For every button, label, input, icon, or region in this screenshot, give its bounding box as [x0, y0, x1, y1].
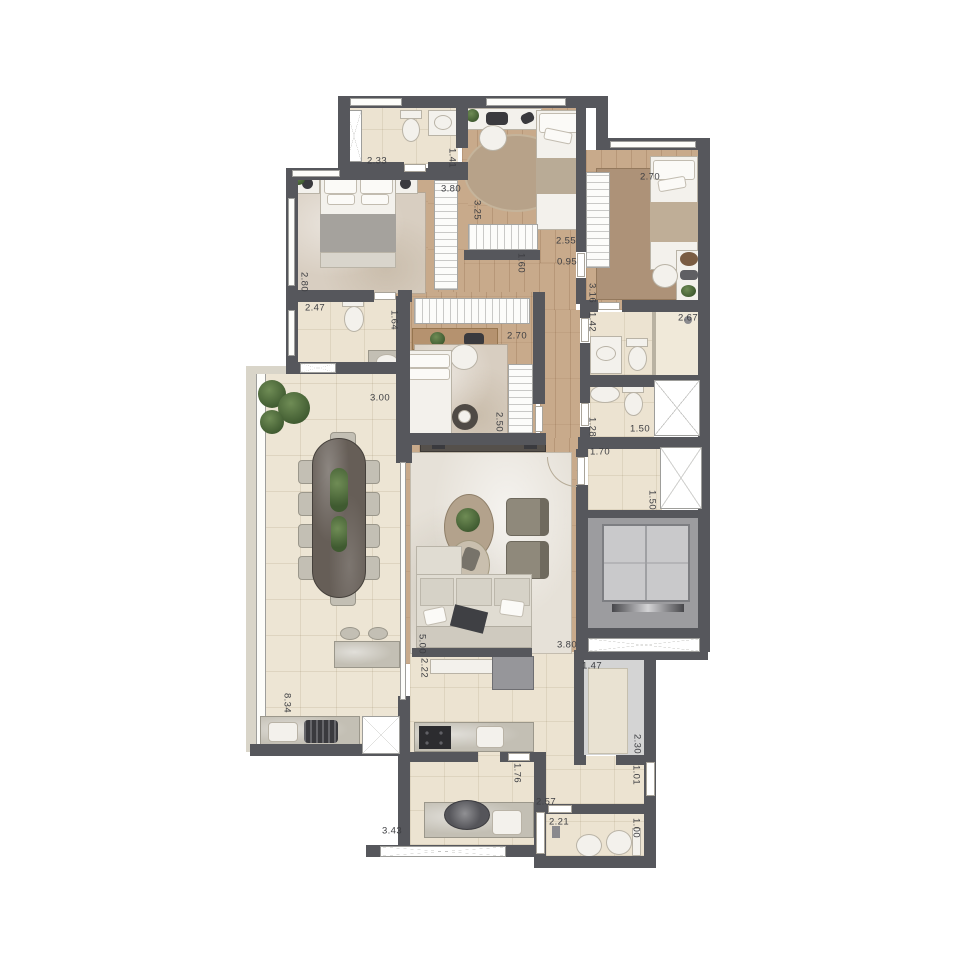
dimension-label: 0.95 [557, 257, 577, 268]
dimension-labels: 2.331.413.803.252.702.550.951.603.161.42… [0, 0, 967, 967]
dimension-label: 1.70 [590, 447, 610, 458]
dimension-label: 2.55 [556, 236, 576, 247]
dimension-label: 1.28 [587, 417, 598, 437]
dimension-label: 3.00 [370, 393, 390, 404]
dimension-label: 1.76 [512, 763, 523, 783]
dimension-label: 3.43 [382, 826, 402, 837]
dimension-label: 2.70 [640, 172, 660, 183]
dimension-label: 3.16 [587, 283, 598, 303]
dimension-label: 1.47 [582, 661, 602, 672]
dimension-label: 1.00 [631, 818, 642, 838]
dimension-label: 1.50 [630, 424, 650, 435]
dimension-label: 1.01 [631, 765, 642, 785]
dimension-label: 5.00 [417, 634, 428, 654]
dimension-label: 2.21 [549, 817, 569, 828]
dimension-label: 3.25 [472, 200, 483, 220]
dimension-label: 2.22 [419, 658, 430, 678]
dimension-label: 8.34 [282, 693, 293, 713]
dimension-label: 2.57 [536, 797, 556, 808]
dimension-label: 3.80 [441, 184, 461, 195]
floor-plan: 2.331.413.803.252.702.550.951.603.161.42… [0, 0, 967, 967]
dimension-label: 1.50 [647, 490, 658, 510]
dimension-label: 2.33 [367, 156, 387, 167]
dimension-label: 2.47 [305, 303, 325, 314]
dimension-label: 3.80 [557, 640, 577, 651]
dimension-label: 1.60 [516, 253, 527, 273]
dimension-label: 2.80 [299, 272, 310, 292]
dimension-label: 2.30 [632, 734, 643, 754]
dimension-label: 1.41 [447, 148, 458, 168]
dimension-label: 2.67 [678, 313, 698, 324]
dimension-label: 2.70 [507, 331, 527, 342]
dimension-label: 2.50 [494, 412, 505, 432]
dimension-label: 1.64 [389, 310, 400, 330]
dimension-label: 1.42 [587, 312, 598, 332]
